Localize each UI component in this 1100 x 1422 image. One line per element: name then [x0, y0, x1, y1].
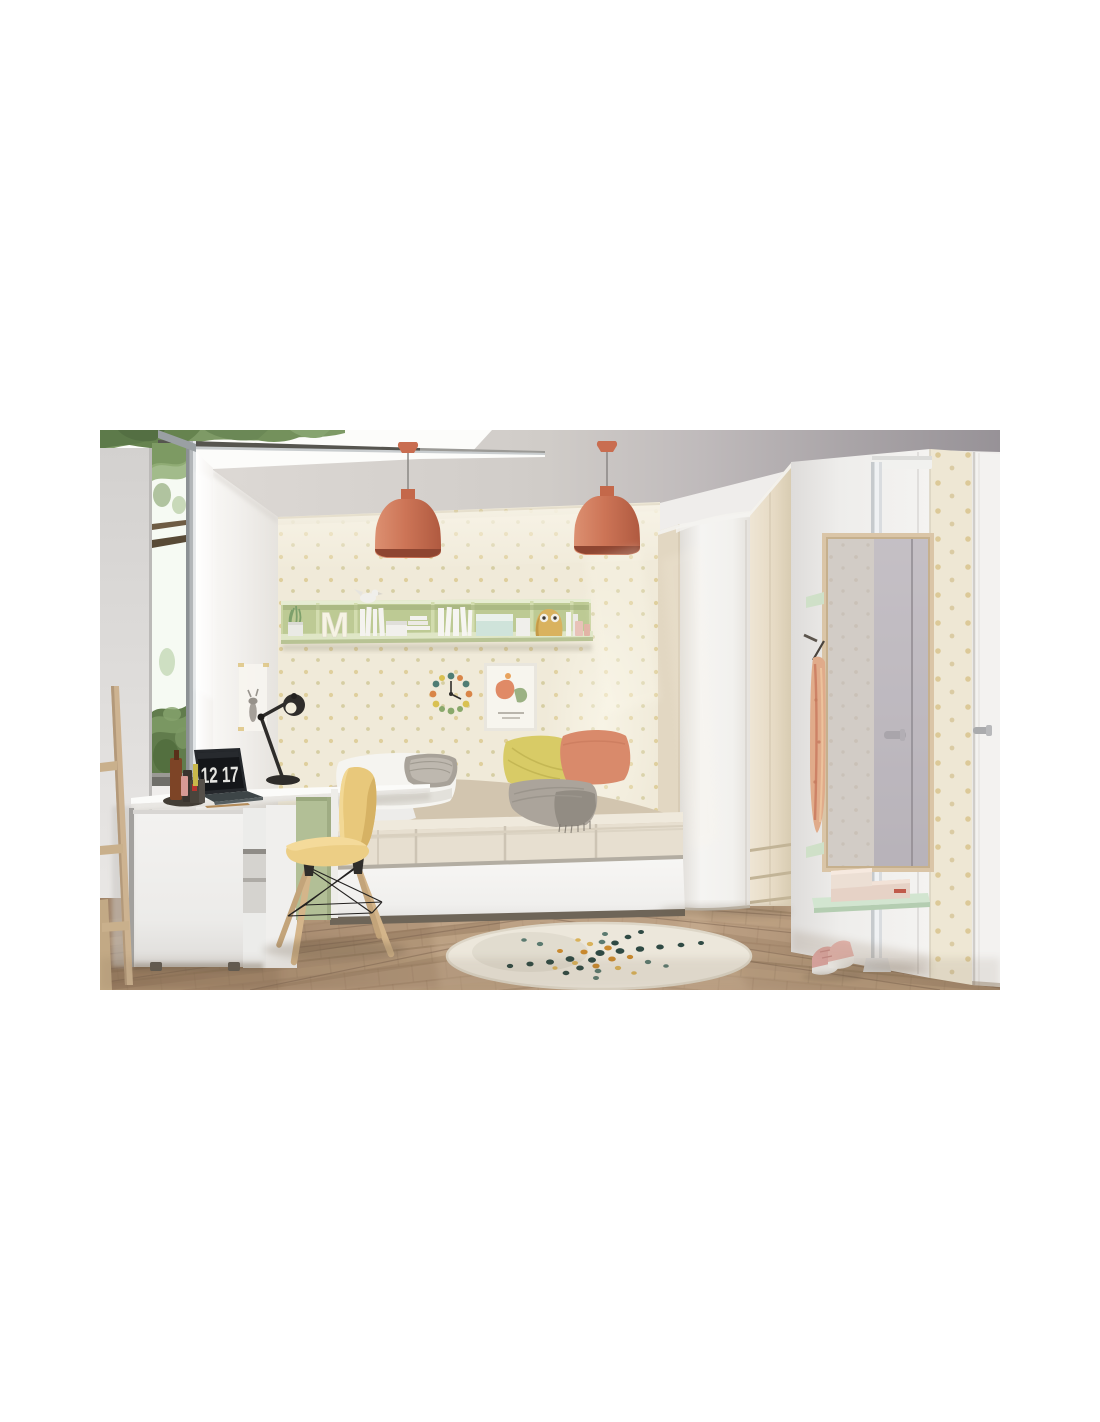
- svg-text:12 17: 12 17: [200, 762, 239, 788]
- svg-text:M: M: [320, 606, 349, 645]
